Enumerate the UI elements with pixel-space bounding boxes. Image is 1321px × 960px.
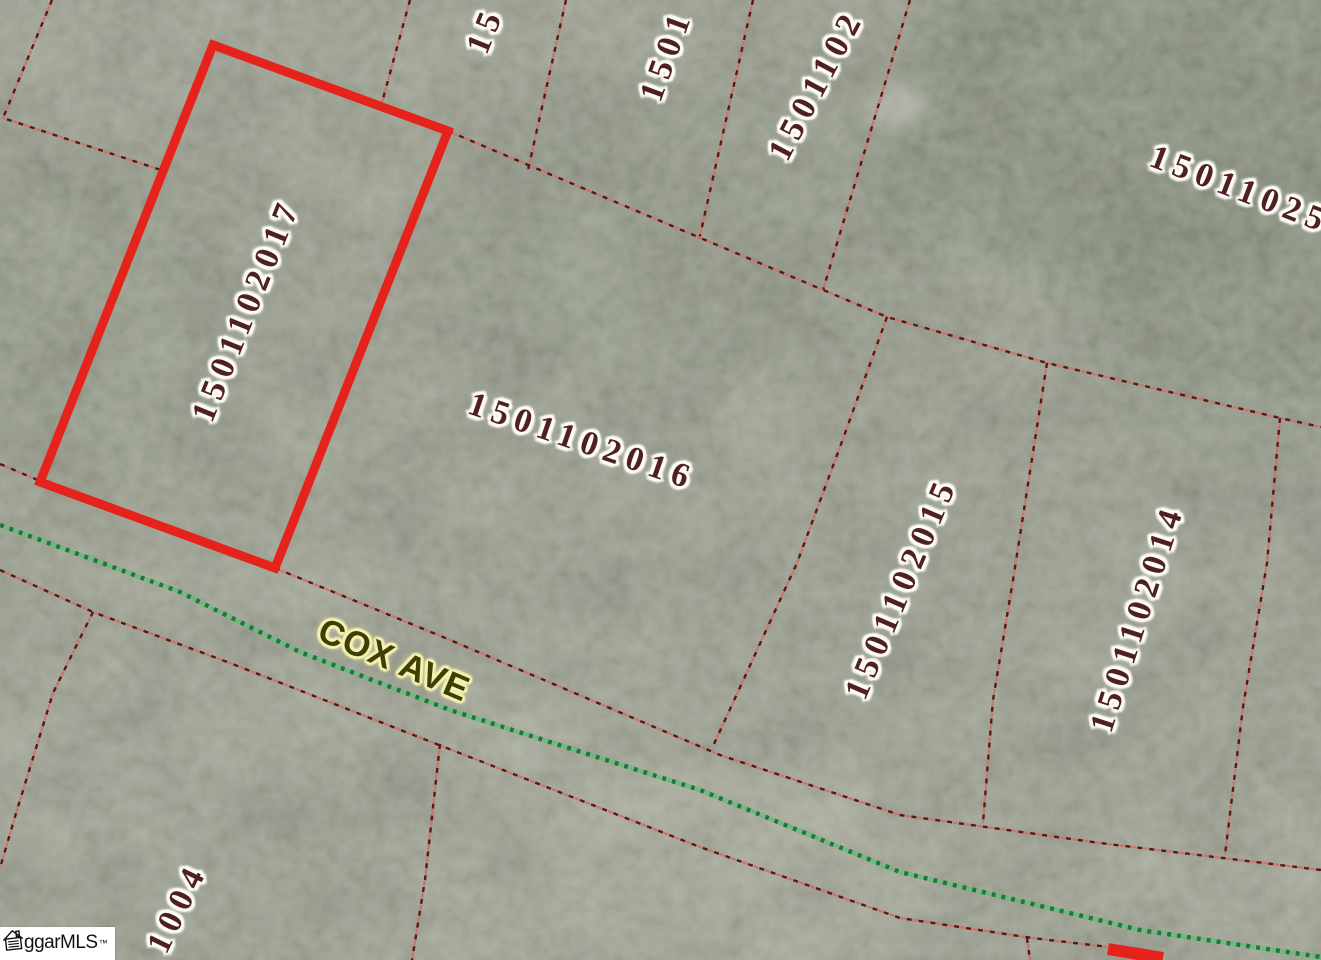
house-icon: [1, 928, 27, 958]
aerial-parcel-map[interactable]: 1515011501102150110251501102017150110201…: [0, 0, 1321, 960]
map-canvas-svg: [0, 0, 1321, 960]
watermark-text: ggarMLS: [24, 932, 98, 954]
watermark-tm: ™: [99, 938, 108, 948]
aerial-noise-fine: [0, 0, 1321, 960]
watermark: ggarMLS ™: [0, 927, 115, 960]
